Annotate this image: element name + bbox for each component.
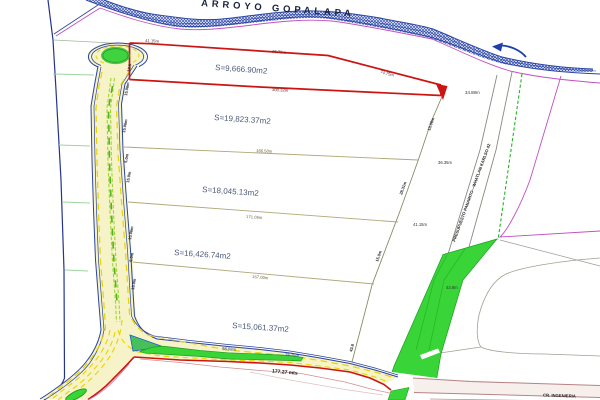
svg-text:166.50m: 166.50m bbox=[256, 148, 273, 154]
svg-text:41.15m: 41.15m bbox=[413, 222, 427, 227]
svg-text:75.75m: 75.75m bbox=[272, 49, 287, 55]
svg-text:41.15m: 41.15m bbox=[145, 38, 160, 44]
svg-text:34.88m: 34.88m bbox=[465, 90, 480, 95]
svg-text:43.8m: 43.8m bbox=[446, 285, 458, 290]
svg-text:98.08m: 98.08m bbox=[222, 346, 237, 352]
svg-text:75.75m: 75.75m bbox=[285, 352, 300, 358]
svg-text:36.35m: 36.35m bbox=[438, 160, 452, 165]
svg-text:300.32m: 300.32m bbox=[272, 87, 289, 93]
